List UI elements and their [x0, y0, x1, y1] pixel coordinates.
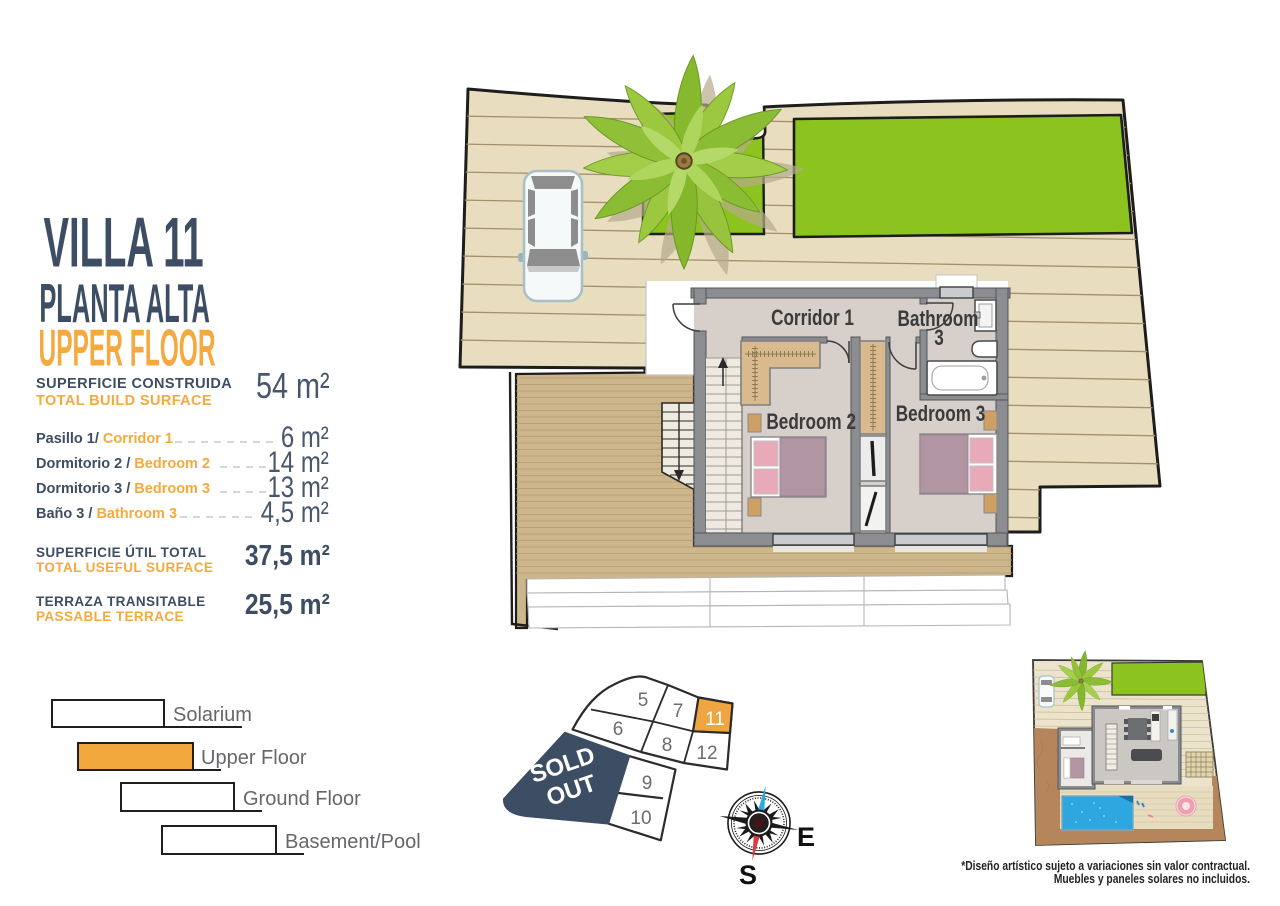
svg-text:SUPERFICIE ÚTIL TOTAL: SUPERFICIE ÚTIL TOTAL — [36, 545, 206, 560]
svg-text:37,5 m²: 37,5 m² — [245, 539, 330, 571]
svg-text:TERRAZA TRANSITABLE: TERRAZA TRANSITABLE — [36, 594, 206, 609]
svg-text:9: 9 — [642, 773, 653, 794]
svg-text:Pasillo 1/ Corridor 1: Pasillo 1/ Corridor 1 — [36, 431, 173, 447]
svg-text:TOTAL USEFUL SURFACE: TOTAL USEFUL SURFACE — [36, 560, 213, 575]
svg-text:Upper Floor: Upper Floor — [201, 747, 307, 769]
svg-text:Bedroom 3: Bedroom 3 — [896, 402, 986, 427]
svg-text:10: 10 — [630, 808, 651, 829]
svg-text:S: S — [739, 860, 757, 890]
svg-text:Basement/Pool: Basement/Pool — [285, 831, 421, 853]
svg-text:3: 3 — [934, 326, 944, 351]
svg-text:Bedroom 2: Bedroom 2 — [766, 410, 856, 435]
svg-text:Muebles y paneles solares no i: Muebles y paneles solares no incluidos. — [1054, 871, 1250, 887]
svg-text:Dormitorio 2 / Bedroom 2: Dormitorio 2 / Bedroom 2 — [36, 456, 210, 472]
svg-text:PASSABLE TERRACE: PASSABLE TERRACE — [36, 609, 184, 624]
svg-text:VILLA 11: VILLA 11 — [43, 204, 203, 282]
svg-text:6: 6 — [613, 719, 624, 740]
svg-text:11: 11 — [705, 709, 725, 730]
svg-text:E: E — [797, 822, 815, 852]
svg-text:SUPERFICIE CONSTRUIDA: SUPERFICIE CONSTRUIDA — [36, 376, 232, 392]
svg-text:Baño 3 / Bathroom 3: Baño 3 / Bathroom 3 — [36, 506, 177, 522]
svg-text:Solarium: Solarium — [173, 704, 252, 726]
svg-text:12: 12 — [696, 743, 717, 764]
svg-text:4,5 m²: 4,5 m² — [261, 494, 329, 528]
svg-text:25,5 m²: 25,5 m² — [245, 588, 330, 620]
svg-text:5: 5 — [638, 690, 649, 711]
svg-text:TOTAL BUILD SURFACE: TOTAL BUILD SURFACE — [36, 393, 212, 409]
svg-text:7: 7 — [673, 701, 684, 722]
svg-text:Ground Floor: Ground Floor — [243, 788, 361, 810]
svg-text:54 m²: 54 m² — [256, 365, 330, 406]
svg-text:Corridor 1: Corridor 1 — [771, 306, 854, 331]
svg-text:UPPER FLOOR: UPPER FLOOR — [39, 318, 216, 377]
svg-text:8: 8 — [662, 735, 673, 756]
svg-text:Dormitorio 3 / Bedroom 3: Dormitorio 3 / Bedroom 3 — [36, 481, 210, 497]
